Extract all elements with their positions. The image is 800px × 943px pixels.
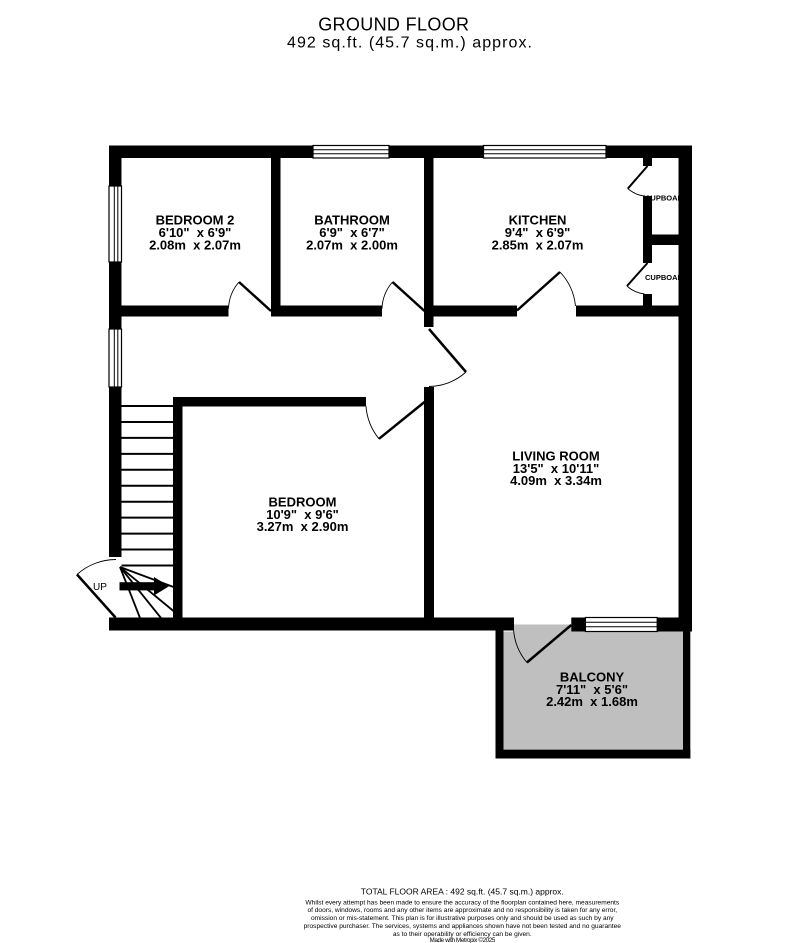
svg-text:2.07m x 2.00m: 2.07m x 2.00m xyxy=(306,237,398,252)
svg-text:prospective purchaser. The ser: prospective purchaser. The services, sys… xyxy=(304,923,622,930)
svg-text:2.42m x 1.68m: 2.42m x 1.68m xyxy=(546,694,638,709)
svg-text:TOTAL FLOOR AREA : 492 sq.ft.: TOTAL FLOOR AREA : 492 sq.ft. (45.7 sq.m… xyxy=(361,886,564,896)
svg-text:2.08m x 2.07m: 2.08m x 2.07m xyxy=(149,237,241,252)
svg-text:3.27m x 2.90m: 3.27m x 2.90m xyxy=(257,519,349,534)
svg-text:492 sq.ft. (45.7 sq.m.) approx: 492 sq.ft. (45.7 sq.m.) approx. xyxy=(287,35,533,52)
svg-text:Made with Metropix ©2025: Made with Metropix ©2025 xyxy=(430,937,496,943)
svg-text:UP: UP xyxy=(93,582,107,593)
svg-text:omission or mis-statement. Thi: omission or mis-statement. This plan is … xyxy=(311,915,614,922)
svg-text:2.85m x 2.07m: 2.85m x 2.07m xyxy=(492,237,584,252)
svg-text:Whilst every attempt has been: Whilst every attempt has been made to en… xyxy=(305,899,619,906)
svg-text:of doors, windows, rooms and a: of doors, windows, rooms and any other i… xyxy=(307,907,617,914)
svg-text:GROUND FLOOR: GROUND FLOOR xyxy=(318,15,469,35)
svg-text:4.09m x 3.34m: 4.09m x 3.34m xyxy=(510,473,602,488)
